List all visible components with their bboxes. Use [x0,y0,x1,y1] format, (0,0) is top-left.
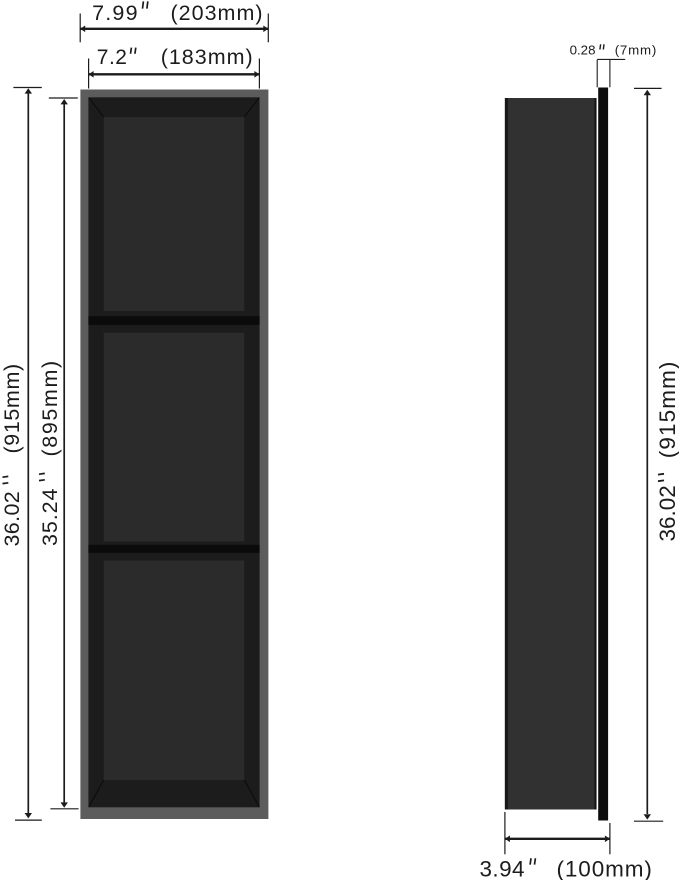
svg-text:3.94: 3.94 [480,857,525,880]
svg-text:(915mm): (915mm) [655,360,679,458]
svg-text:(7mm): (7mm) [615,43,657,58]
svg-text:(895mm): (895mm) [38,359,62,456]
svg-text:(203mm): (203mm) [171,1,264,25]
svg-text:(100mm): (100mm) [557,857,653,880]
svg-text:7.99: 7.99 [92,1,139,25]
svg-text:36.02: 36.02 [655,485,679,541]
svg-text:36.02: 36.02 [0,491,24,547]
svg-text:(183mm): (183mm) [161,45,254,69]
svg-text:7.2: 7.2 [97,46,128,69]
svg-text:35.24: 35.24 [38,488,62,546]
svg-text:(915mm): (915mm) [0,363,24,453]
svg-text:0.28: 0.28 [570,43,596,58]
